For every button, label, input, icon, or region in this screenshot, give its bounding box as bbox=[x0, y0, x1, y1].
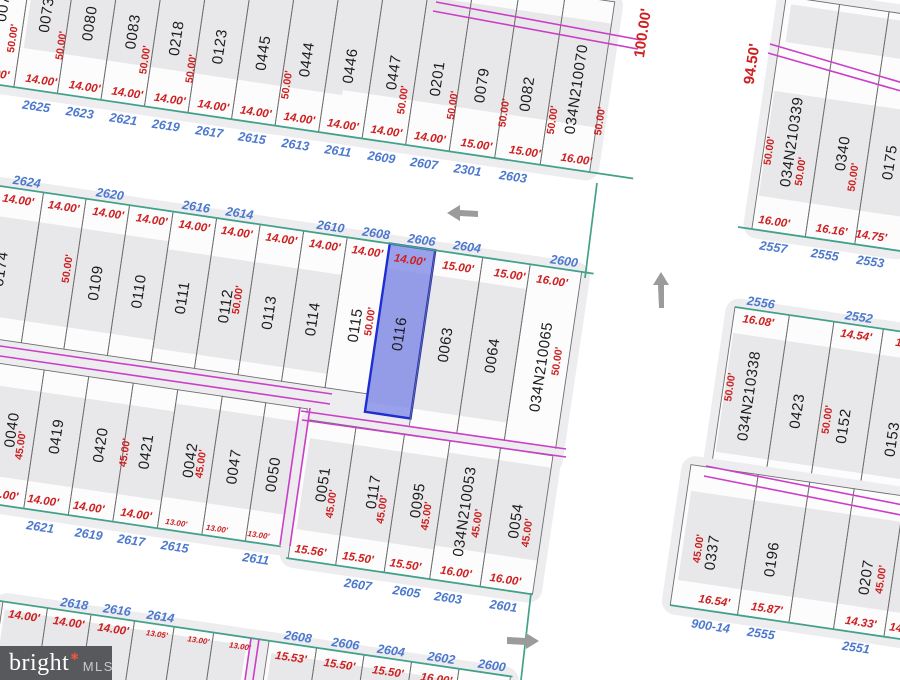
street-number-label: 2551 bbox=[840, 639, 871, 657]
street-number-label: 2555 bbox=[809, 246, 841, 264]
street-number-label: 2605 bbox=[391, 583, 423, 601]
building-footprint-shade bbox=[759, 91, 900, 217]
street-number-label: 2603 bbox=[432, 589, 463, 607]
street-dimension-label: 94.50' bbox=[741, 42, 764, 85]
street-number-label: 2555 bbox=[745, 625, 777, 643]
boundary-line bbox=[585, 183, 597, 278]
street-dimension-label: 100.00' bbox=[631, 7, 655, 58]
block-north-row: 0070073008000830218012304450444044604470… bbox=[0, 0, 660, 201]
street-number-label: 2625 bbox=[20, 97, 52, 115]
brightmls-watermark: bright ✱ MLS bbox=[0, 646, 112, 680]
brightmls-mls-text: MLS bbox=[83, 659, 114, 674]
arrow-left-icon bbox=[447, 205, 478, 221]
brightmls-star-icon: ✱ bbox=[70, 652, 78, 663]
street-number-label: 2617 bbox=[194, 123, 226, 141]
street-number-label: 2621 bbox=[108, 110, 139, 128]
street-number-label: 2613 bbox=[280, 136, 311, 154]
street-number-label: 2601 bbox=[488, 597, 519, 615]
street-number-label: 2617 bbox=[115, 531, 147, 549]
arrow-right-icon bbox=[507, 633, 539, 649]
street-number-label: 2619 bbox=[73, 525, 104, 543]
block-east-north-row: 034N2103390340017550.00'50.00'50.00'16.0… bbox=[735, 0, 900, 274]
street-number-label: 2623 bbox=[64, 104, 95, 122]
street-number-label: 2557 bbox=[758, 238, 790, 256]
street-number-label: 2607 bbox=[408, 155, 440, 173]
plat-map: 0070073008000830218012304450444044604470… bbox=[0, 0, 900, 680]
street-number-label: 2611 bbox=[323, 142, 353, 160]
street-number-label: 2619 bbox=[150, 117, 181, 135]
block-east-south-row: 03370196020745.00'45.00'16.54'15.87'14.3… bbox=[658, 454, 900, 667]
street-number-label: 2603 bbox=[497, 168, 528, 186]
street-number-label: 2301 bbox=[452, 161, 483, 179]
lot-width-label: 14. bbox=[888, 621, 900, 635]
street-number-label: 2615 bbox=[159, 538, 191, 556]
street-number-label: 2607 bbox=[342, 576, 374, 594]
street-number-label: 2609 bbox=[366, 148, 397, 166]
arrow-up-icon bbox=[653, 272, 669, 308]
street-number-label: 2611 bbox=[241, 550, 271, 568]
brightmls-brand-text: bright bbox=[9, 650, 69, 677]
street-number-label: 2553 bbox=[855, 253, 886, 271]
street-number-label: 2621 bbox=[24, 518, 55, 536]
street-number-label: 2615 bbox=[236, 129, 268, 147]
plat-map-page: 0070073008000830218012304450444044604470… bbox=[0, 0, 900, 680]
